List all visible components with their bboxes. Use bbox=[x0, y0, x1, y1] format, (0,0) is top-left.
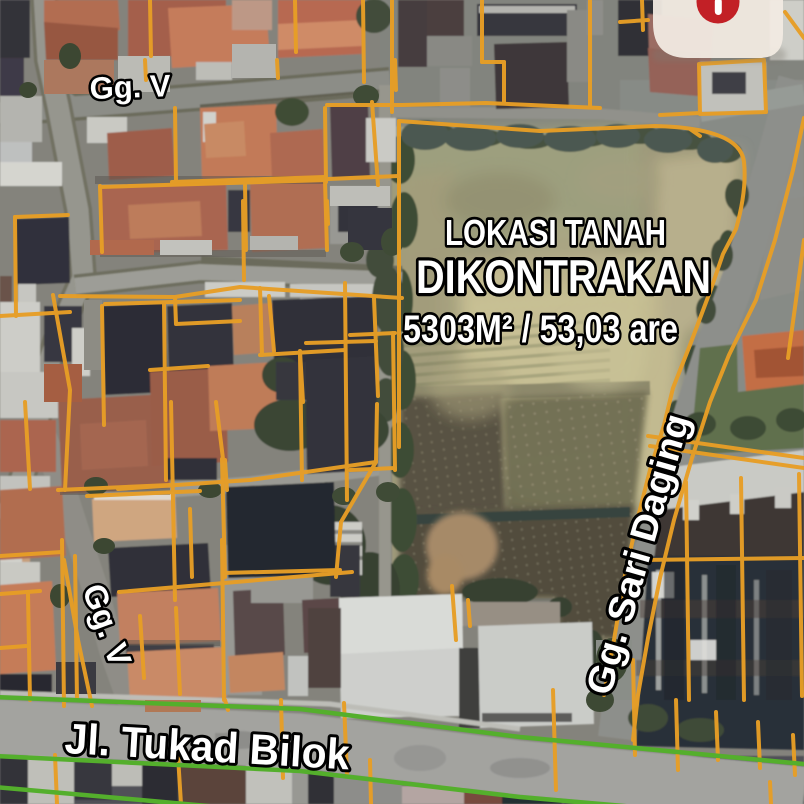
svg-text:DIKONTRAKAN: DIKONTRAKAN bbox=[416, 250, 711, 303]
svg-text:5303M² / 53,03 are: 5303M² / 53,03 are bbox=[403, 308, 678, 351]
svg-text:Gg. V: Gg. V bbox=[89, 68, 171, 106]
svg-text:LOKASI TANAH: LOKASI TANAH bbox=[445, 212, 666, 253]
